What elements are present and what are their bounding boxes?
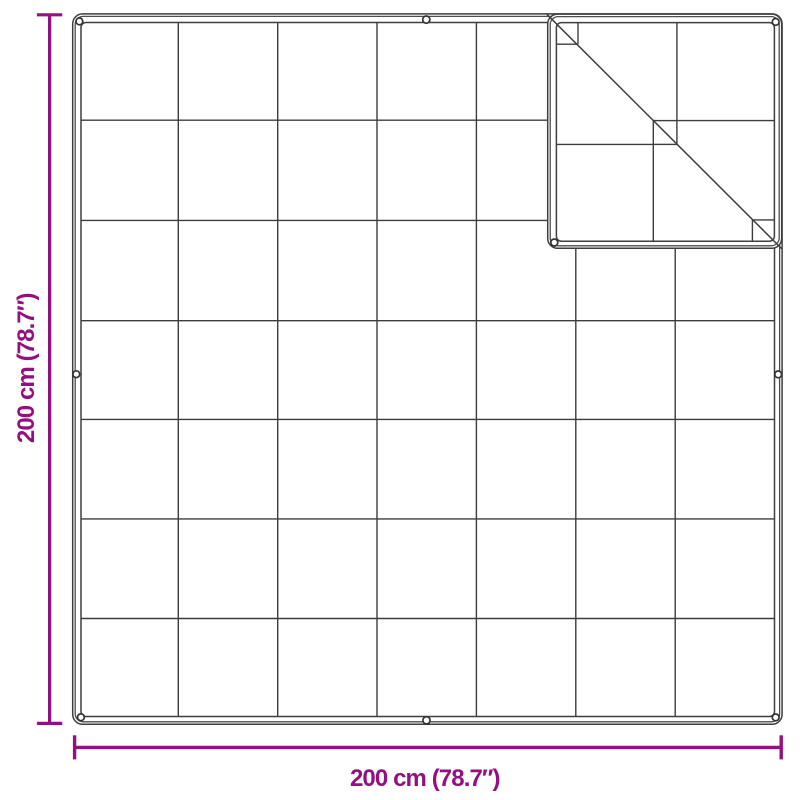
svg-text:200 cm (78.7″): 200 cm (78.7″) (13, 293, 40, 443)
svg-text:200 cm (78.7″): 200 cm (78.7″) (350, 765, 500, 792)
